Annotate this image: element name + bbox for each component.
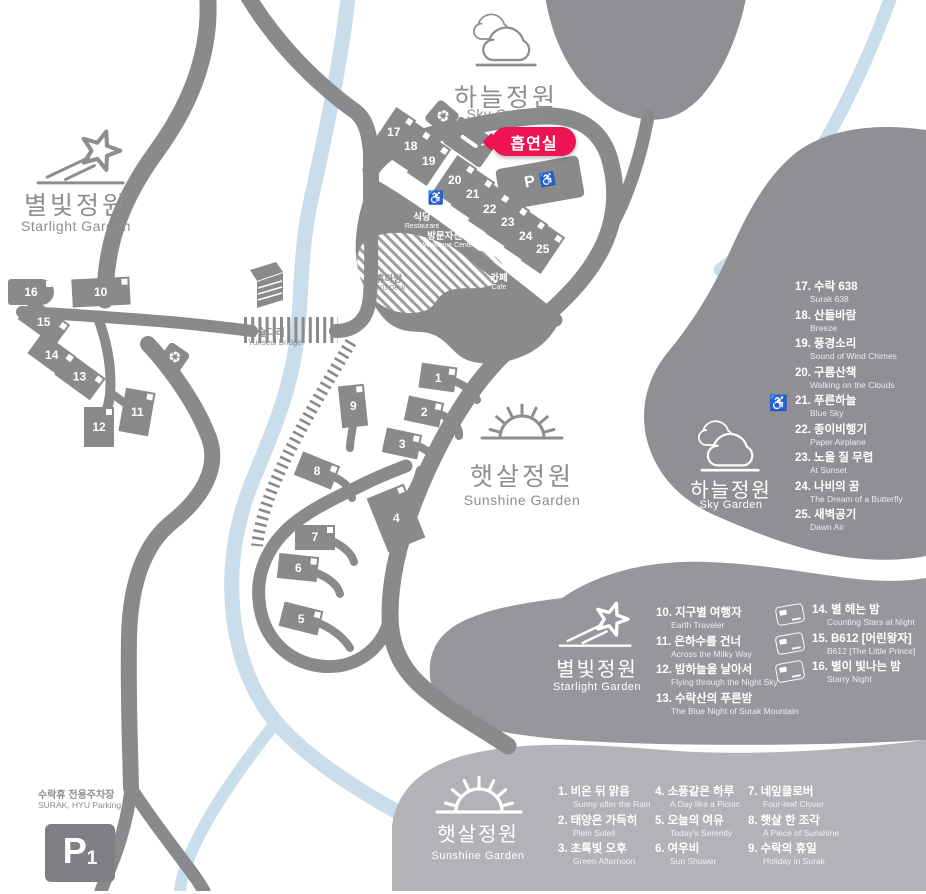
- surak-hyu-facility-map: 1234567891011121314151617181920212223242…: [0, 0, 926, 891]
- cabin-number: 23: [501, 216, 514, 228]
- legend-item-19: 19.풍경소리Sound of Wind Chimes: [795, 338, 903, 362]
- legend-item-name-ko: 나비의 꿈: [814, 481, 860, 493]
- cabin-markers-layer: 1234567891011121314151617181920212223242…: [0, 0, 926, 891]
- cabin-number: 5: [298, 612, 305, 624]
- legend-item-18: 18.산들바람Breeze: [795, 310, 903, 334]
- cabin-number: 16: [24, 286, 37, 298]
- legend-item-15: 15.B612 [어린왕자]B612 [The Little Prince]: [812, 633, 915, 657]
- cabin-marker-8: 8: [294, 451, 340, 489]
- legend-item-number: 8.: [748, 815, 758, 827]
- legend-item-name-en: Sound of Wind Chimes: [810, 352, 903, 362]
- legend-item-name-ko: 수락 638: [814, 281, 858, 293]
- legend-item-6: 6.여우비Sun Shower: [655, 843, 740, 867]
- starlight-garden-map-subtitle: Starlight Garden: [21, 218, 131, 234]
- legend-item-name-en: Four-leaf Clover: [763, 800, 839, 810]
- legend-item-name-ko: 여우비: [668, 843, 700, 855]
- cabin-number: 8: [314, 464, 321, 476]
- caravan-window: [779, 610, 787, 616]
- restaurant-label: 식당 Restaurant: [405, 212, 439, 231]
- legend-item-name-ko: 지구별 여행자: [675, 607, 742, 619]
- sunshine-garden-map-title: 햇살정원: [470, 457, 574, 493]
- legend-sky-list: 17.수락 638Surak 63818.산들바람Breeze19.풍경소리So…: [795, 281, 903, 538]
- legend-item-17: 17.수락 638Surak 638: [795, 281, 903, 305]
- legend-item-name-ko: 풍경소리: [814, 338, 856, 350]
- cabin-marker-7: 7: [295, 525, 335, 550]
- parking-p1-sign: P1: [45, 824, 115, 882]
- legend-item-name-en: A Piece of Sunshine: [763, 829, 839, 839]
- legend-item-name-ko: 종이비행기: [814, 424, 867, 436]
- legend-item-name-ko: 구름산책: [814, 367, 856, 379]
- legend-item-number: 10.: [656, 607, 672, 619]
- legend-item-name-en: Paper Airplane: [810, 438, 903, 448]
- cabin-number: 19: [422, 155, 435, 167]
- cabin-number: 25: [536, 243, 549, 255]
- legend-item-name-ko: 별 헤는 밤: [831, 604, 880, 616]
- legend-starlight-title: 별빛정원: [556, 653, 638, 682]
- cabin-marker-5: 5: [279, 601, 324, 635]
- legend-sunshine-title: 햇살정원: [437, 818, 519, 847]
- cabin-number: 20: [448, 174, 461, 186]
- sky-garden-map-subtitle: Sky Garden: [467, 106, 546, 122]
- cabin-marker-2: 2: [404, 395, 444, 427]
- parking-lot-label: 수락휴 전용주차장 SURAK, HYU Parking Lot: [38, 790, 135, 809]
- legend-sunshine-col3: 7.네잎클로버Four-leaf Clover8.햇살 한 조각A Piece …: [748, 786, 839, 872]
- cabin-number: 18: [404, 140, 417, 152]
- cabin-number: 3: [399, 437, 406, 449]
- cabin-marker-6: 6: [277, 552, 319, 581]
- legend-item-25: 25.새벽공기Dawn Air: [795, 509, 903, 533]
- legend-item-number: 16.: [812, 661, 828, 673]
- cabin-number: 17: [387, 126, 400, 138]
- caravan-window: [779, 638, 787, 644]
- legend-item-2: 2.태양은 가득히Plein Soleil: [558, 815, 651, 839]
- legend-item-name-en: Sunny after the Rain: [573, 800, 651, 810]
- legend-item-16: 16.별이 빛나는 밤Starry Night: [812, 661, 915, 685]
- legend-item-3: 3.초록빛 오후Green Afternoon: [558, 843, 651, 867]
- starlight-garden-map-title: 별빛정원: [24, 186, 128, 222]
- legend-item-number: 2.: [558, 815, 568, 827]
- legend-item-number: 12.: [656, 664, 672, 676]
- cabin-marker-1: 1: [418, 362, 457, 392]
- cabin-number: 22: [483, 203, 496, 215]
- legend-item-number: 11.: [656, 636, 671, 648]
- legend-item-number: 7.: [748, 786, 758, 798]
- legend-item-name-ko: 햇살 한 조각: [761, 815, 820, 827]
- legend-item-number: 24.: [795, 481, 811, 493]
- legend-item-name-en: Sun Shower: [670, 857, 740, 867]
- smoking-room-badge: 흡연실: [492, 127, 576, 156]
- legend-item-number: 9.: [748, 843, 758, 855]
- legend-item-name-en: Green Afternoon: [573, 857, 651, 867]
- cabin-marker-3: 3: [382, 427, 422, 459]
- legend-item-8: 8.햇살 한 조각A Piece of Sunshine: [748, 815, 839, 839]
- legend-item-name-en: Plein Soleil: [573, 829, 651, 839]
- legend-item-24: 24.나비의 꿈The Dream of a Butterfly: [795, 481, 903, 505]
- legend-item-14: 14.별 헤는 밤Counting Stars at Night: [812, 604, 915, 628]
- legend-item-number: 17.: [795, 281, 811, 293]
- legend-item-name-ko: B612 [어린왕자]: [831, 633, 912, 645]
- legend-starlight-subtitle: Starlight Garden: [553, 681, 641, 693]
- cabin-marker-4: 4: [367, 484, 426, 553]
- legend-item-number: 21.: [795, 395, 811, 407]
- cafe-label: 카페 Cafe: [490, 273, 507, 292]
- legend-item-9: 9.수락의 휴일Holiday in Surak: [748, 843, 839, 867]
- cabin-number: 2: [421, 405, 428, 417]
- cabin-number: 4: [393, 512, 400, 524]
- cabin-number: 10: [94, 286, 107, 298]
- legend-item-name-en: Today's Serenity: [670, 829, 740, 839]
- legend-item-name-en: Walking on the Clouds: [810, 381, 903, 391]
- legend-item-name-ko: 은하수를 건너: [674, 636, 741, 648]
- legend-item-name-ko: 푸른하늘: [814, 395, 856, 407]
- legend-item-number: 1.: [558, 786, 568, 798]
- cabin-number: 12: [92, 421, 105, 433]
- legend-item-number: 20.: [795, 367, 811, 379]
- legend-item-name-ko: 태양은 가득히: [571, 815, 638, 827]
- legend-starlight-list-right: 14.별 헤는 밤Counting Stars at Night15.B612 …: [812, 604, 915, 690]
- cabin-number: 24: [519, 230, 532, 242]
- legend-item-number: 23.: [795, 452, 811, 464]
- legend-item-20: 20.구름산책Walking on the Clouds: [795, 367, 903, 391]
- cabin-number: 9: [350, 400, 357, 412]
- legend-item-23: 23.노을 질 무렵At Sunset: [795, 452, 903, 476]
- legend-item-name-en: Breeze: [810, 324, 903, 334]
- legend-item-number: 3.: [558, 843, 568, 855]
- parking-p1-letter: P: [63, 824, 87, 878]
- cabin-marker-9: 9: [338, 384, 368, 428]
- legend-item-22: 22.종이비행기Paper Airplane: [795, 424, 903, 448]
- legend-item-name-ko: 밤하늘을 날아서: [675, 664, 752, 676]
- legend-item-name-en: Counting Stars at Night: [827, 618, 915, 628]
- legend-item-name-en: Dawn Air: [810, 523, 903, 533]
- wheelchair-icon: ♿: [428, 190, 444, 206]
- legend-item-number: 4.: [655, 786, 665, 798]
- cabin-number: 7: [312, 531, 319, 543]
- cabin-number: 21: [466, 188, 479, 200]
- wheelchair-icon: ♿: [538, 170, 557, 188]
- legend-sunshine-col1: 1.비온 뒤 맑음Sunny after the Rain2.태양은 가득히Pl…: [558, 786, 651, 872]
- sunshine-garden-map-subtitle: Sunshine Garden: [464, 492, 580, 508]
- legend-item-7: 7.네잎클로버Four-leaf Clover: [748, 786, 839, 810]
- legend-item-name-ko: 초록빛 오후: [571, 843, 627, 855]
- legend-item-name-en: The Blue Night of Surak Mountain: [671, 707, 799, 717]
- yunseul-bridge-label: 윤슬다리 Yunseul Bridge: [248, 328, 302, 347]
- legend-item-name-ko: 소풍같은 하루: [668, 786, 735, 798]
- legend-item-name-en: At Sunset: [810, 466, 903, 476]
- legend-item-number: 18.: [795, 310, 811, 322]
- legend-item-name-ko: 비온 뒤 맑음: [571, 786, 630, 798]
- legend-item-number: 14.: [812, 604, 828, 616]
- legend-item-number: 19.: [795, 338, 811, 350]
- cabin-marker-11: 11: [118, 388, 155, 437]
- legend-item-13: 13.수락산의 푸른밤The Blue Night of Surak Mount…: [656, 693, 799, 717]
- smoking-room-label: 흡연실: [510, 130, 557, 154]
- legend-item-1: 1.비온 뒤 맑음Sunny after the Rain: [558, 786, 651, 810]
- legend-item-4: 4.소풍같은 하루A Day like a Picnic: [655, 786, 740, 810]
- legend-item-name-ko: 별이 빛나는 밤: [831, 661, 901, 673]
- cabin-number: 14: [45, 349, 58, 361]
- legend-item-number: 15.: [812, 633, 828, 645]
- cabin-number: 6: [295, 561, 302, 573]
- cabin-number: 15: [37, 316, 50, 328]
- cabin-number: 13: [73, 370, 86, 382]
- legend-item-number: 6.: [655, 843, 665, 855]
- parking-p1-number: 1: [87, 824, 98, 894]
- legend-sky-subtitle: Sky Garden: [699, 499, 762, 511]
- welcome-center-label: 방문자센터 Welcome Center: [423, 231, 475, 250]
- wheelchair-icon: ♿: [769, 394, 788, 412]
- legend-item-number: 25.: [795, 509, 811, 521]
- legend-sunshine-col2: 4.소풍같은 하루A Day like a Picnic5.오늘의 여유Toda…: [655, 786, 740, 872]
- legend-item-number: 22.: [795, 424, 811, 436]
- cabin-number: 11: [131, 406, 144, 418]
- legend-item-name-en: Starry Night: [827, 675, 915, 685]
- legend-item-name-en: Surak 638: [810, 295, 903, 305]
- cabin-marker-10: 10: [71, 277, 130, 308]
- cabin-number: 1: [435, 371, 442, 383]
- legend-item-name-ko: 수락의 휴일: [761, 843, 817, 855]
- caravan-window: [779, 667, 787, 673]
- legend-item-name-ko: 산들바람: [814, 310, 856, 322]
- cabin-marker-16: 16: [8, 279, 54, 305]
- legend-item-name-ko: 새벽공기: [814, 509, 856, 521]
- legend-item-name-en: A Day like a Picnic: [670, 800, 740, 810]
- legend-item-number: 5.: [655, 815, 665, 827]
- legend-item-number: 13.: [656, 693, 672, 705]
- legend-item-name-ko: 네잎클로버: [761, 786, 814, 798]
- legend-item-name-ko: 노을 질 무렵: [814, 452, 873, 464]
- legend-item-name-en: The Dream of a Butterfly: [810, 495, 903, 505]
- hyu-deck-label: 휴마당 HYU Deck: [373, 274, 406, 293]
- legend-sunshine-subtitle: Sunshine Garden: [431, 850, 524, 862]
- legend-item-name-ko: 오늘의 여유: [668, 815, 724, 827]
- legend-item-name-en: Holiday in Surak: [763, 857, 839, 867]
- cabin-marker-12: 12: [84, 407, 114, 447]
- legend-item-21: ♿21.푸른하늘Blue Sky: [795, 395, 903, 419]
- legend-item-name-en: B612 [The Little Prince]: [827, 647, 915, 657]
- legend-item-5: 5.오늘의 여유Today's Serenity: [655, 815, 740, 839]
- legend-item-name-en: Blue Sky: [810, 409, 903, 419]
- legend-item-name-ko: 수락산의 푸른밤: [675, 693, 752, 705]
